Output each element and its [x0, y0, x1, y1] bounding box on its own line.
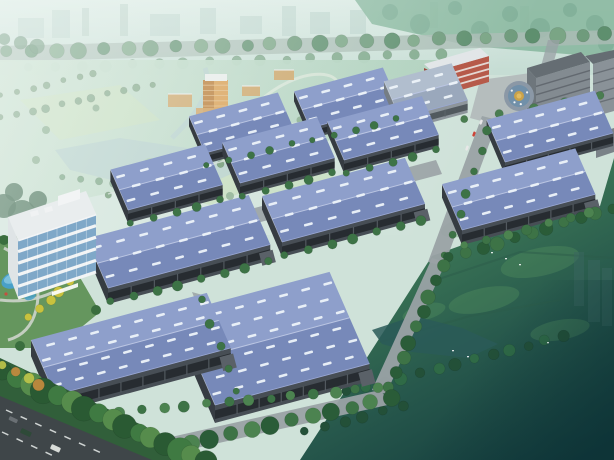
tree — [35, 304, 43, 312]
tree — [309, 137, 315, 143]
wall-pillar — [325, 380, 326, 390]
tree — [262, 187, 270, 195]
tree — [340, 417, 351, 428]
tree — [461, 241, 468, 248]
tree — [202, 399, 211, 408]
wall-pillar — [208, 359, 209, 369]
tree — [173, 208, 181, 216]
tree — [33, 379, 45, 391]
wall-pillar — [287, 174, 288, 181]
tree — [308, 389, 319, 400]
tree — [217, 342, 225, 350]
tree — [482, 126, 491, 135]
tree — [286, 391, 295, 400]
tree — [192, 202, 201, 211]
wall-pillar — [591, 142, 592, 149]
wall-pillar — [98, 388, 99, 398]
tree — [178, 401, 189, 412]
tree — [366, 164, 374, 172]
garden-tree — [15, 341, 25, 351]
tree — [437, 259, 450, 272]
tree — [261, 416, 279, 434]
wall-pillar — [506, 222, 507, 230]
tree — [267, 395, 275, 403]
tree — [300, 427, 308, 435]
tree — [304, 175, 313, 184]
tree — [304, 245, 312, 253]
tree — [432, 146, 439, 153]
tree — [200, 430, 219, 449]
tree — [370, 121, 378, 129]
tree — [225, 157, 232, 164]
tree — [346, 401, 359, 414]
fountain-sparkle — [511, 90, 513, 92]
tree — [281, 251, 288, 258]
tree — [160, 403, 170, 413]
tree — [356, 411, 368, 423]
tree — [172, 280, 183, 291]
tree — [504, 230, 514, 240]
wall-pillar — [444, 110, 445, 117]
tree — [233, 388, 240, 395]
tree — [225, 397, 235, 407]
wall-pillar — [484, 228, 485, 236]
tree — [0, 361, 6, 369]
tree — [225, 365, 233, 373]
tree — [264, 257, 272, 265]
tree — [239, 193, 246, 200]
tree — [389, 158, 397, 166]
wall-pillar — [259, 398, 260, 408]
wall-pillar — [164, 371, 165, 381]
white-speck — [505, 258, 507, 259]
tree — [137, 405, 146, 414]
fountain-sculpture-top — [517, 94, 522, 99]
tree — [285, 181, 293, 189]
tree — [203, 162, 209, 168]
wall-pillar — [236, 404, 237, 414]
industrial-park-aerial-rendering — [0, 0, 614, 460]
tree — [11, 367, 20, 376]
tree — [347, 234, 358, 245]
tree — [521, 225, 532, 236]
tree — [247, 152, 254, 159]
tree — [24, 373, 35, 384]
tree — [449, 231, 457, 239]
wall-pillar — [281, 392, 282, 402]
tree — [265, 146, 273, 154]
tree — [223, 426, 237, 440]
tree — [285, 413, 299, 427]
wall-pillar — [391, 151, 392, 158]
dark-corner-veil — [380, 280, 614, 460]
tree — [478, 147, 486, 155]
tree — [130, 292, 138, 300]
wall-pillar — [347, 375, 348, 385]
white-speck — [491, 252, 493, 253]
tree — [461, 115, 468, 122]
fountain-sparkle — [526, 91, 528, 93]
scene-canvas — [0, 0, 614, 460]
fountain-sparkle — [513, 101, 515, 103]
tree — [322, 403, 340, 421]
tree — [545, 219, 553, 227]
tree — [320, 422, 329, 431]
tree — [240, 263, 250, 273]
tree — [197, 274, 205, 282]
wall-pillar — [263, 180, 264, 187]
tree — [396, 221, 405, 230]
tree — [220, 269, 229, 278]
wall-pillar — [528, 216, 529, 224]
wall-pillar — [198, 195, 199, 202]
tree — [331, 132, 338, 139]
tree — [198, 296, 205, 303]
tree — [457, 210, 465, 218]
tree — [566, 213, 575, 222]
tree — [393, 115, 399, 121]
tree — [25, 313, 32, 320]
tree — [330, 387, 342, 399]
tree — [490, 237, 504, 251]
tree — [328, 240, 338, 250]
tree — [205, 319, 214, 328]
tree — [107, 297, 114, 304]
wall-pillar — [175, 201, 176, 208]
wall-pillar — [303, 386, 304, 396]
wall-pillar — [550, 210, 551, 218]
tree — [150, 214, 158, 222]
wall-pillar — [120, 382, 121, 392]
tree — [584, 207, 594, 217]
fountain-sparkle — [520, 103, 522, 105]
tree — [343, 170, 350, 177]
atmosphere — [380, 280, 614, 460]
tree — [363, 394, 378, 409]
tree — [244, 421, 260, 437]
tree — [416, 215, 426, 225]
tree — [373, 227, 381, 235]
tree — [305, 408, 321, 424]
tree — [243, 395, 254, 406]
tree — [216, 196, 223, 203]
tree — [328, 169, 335, 176]
garden-tree — [91, 305, 101, 315]
wall-pillar — [572, 204, 573, 212]
tree — [482, 236, 490, 244]
tree — [461, 189, 470, 198]
wall-pillar — [310, 168, 311, 175]
tree — [351, 385, 360, 394]
wall-pillar — [367, 157, 368, 164]
tree — [352, 127, 359, 134]
tree — [408, 152, 417, 161]
tree — [153, 286, 163, 296]
flower-bed — [4, 292, 7, 295]
wall-pillar — [186, 365, 187, 375]
white-speck — [519, 264, 521, 265]
tree — [470, 168, 477, 175]
wall-pillar — [247, 255, 248, 264]
tree — [127, 220, 134, 227]
wall-pillar — [414, 145, 415, 152]
tree — [289, 140, 295, 146]
tree — [46, 296, 56, 306]
wall-pillar — [142, 376, 143, 386]
wall-pillar — [151, 207, 152, 214]
